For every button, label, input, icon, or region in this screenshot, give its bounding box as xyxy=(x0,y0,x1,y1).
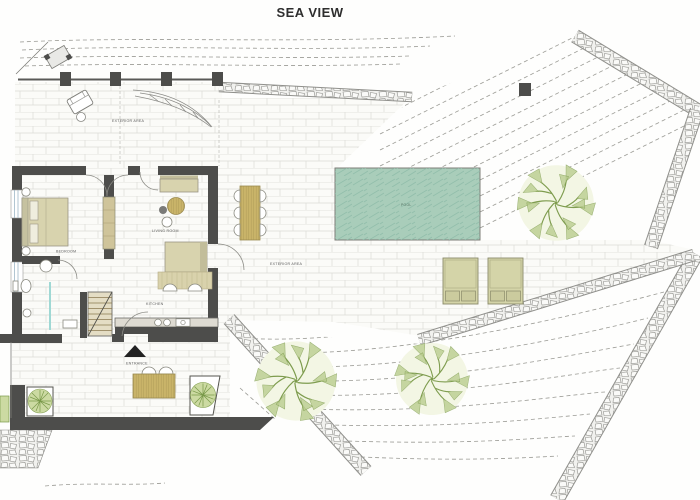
dining-table xyxy=(240,186,260,240)
dining-area xyxy=(234,186,266,240)
coffee-table xyxy=(168,198,185,215)
side-table xyxy=(77,113,86,122)
gate-structure xyxy=(44,44,73,70)
bedside-lamp xyxy=(22,247,30,255)
stove xyxy=(176,319,190,327)
outdoor-table xyxy=(133,374,175,398)
ottoman xyxy=(159,206,167,214)
sink xyxy=(63,320,77,328)
pillar xyxy=(161,72,172,86)
paved-terrace xyxy=(12,82,695,418)
pool-label: POOL xyxy=(401,203,412,207)
stool xyxy=(40,260,52,272)
shower-drain xyxy=(23,309,31,317)
pool: POOL xyxy=(335,168,480,240)
bedroom-label: BEDROOM xyxy=(56,250,76,254)
exterior-area-main-label: EXTERIOR AREA xyxy=(270,262,303,266)
chair xyxy=(234,190,240,236)
side-table xyxy=(162,217,172,227)
kitchen-label: KITCHEN xyxy=(146,302,164,306)
toilet xyxy=(21,280,31,293)
floor-plan: POOL xyxy=(0,0,700,500)
window xyxy=(11,190,23,218)
sink-bowl xyxy=(155,319,162,326)
bed xyxy=(22,198,68,246)
entrance-label: ENTRANCE xyxy=(126,362,148,366)
sun-lounger xyxy=(443,258,478,304)
sun-lounger xyxy=(488,258,523,304)
pillar xyxy=(110,72,121,86)
bedside-lamp xyxy=(22,188,30,196)
sofa xyxy=(160,179,198,192)
exterior-area-top-label: EXTERIOR AREA xyxy=(112,119,145,123)
floor-plan-page: SEA VIEW xyxy=(0,0,700,500)
staircase xyxy=(88,292,112,336)
pillar xyxy=(60,72,71,86)
pillar xyxy=(519,83,531,96)
planter xyxy=(0,396,9,422)
sink-bowl xyxy=(164,319,171,326)
chair xyxy=(260,190,266,236)
living-room-label: LIVING ROOM xyxy=(152,229,179,233)
pillar xyxy=(212,72,223,86)
